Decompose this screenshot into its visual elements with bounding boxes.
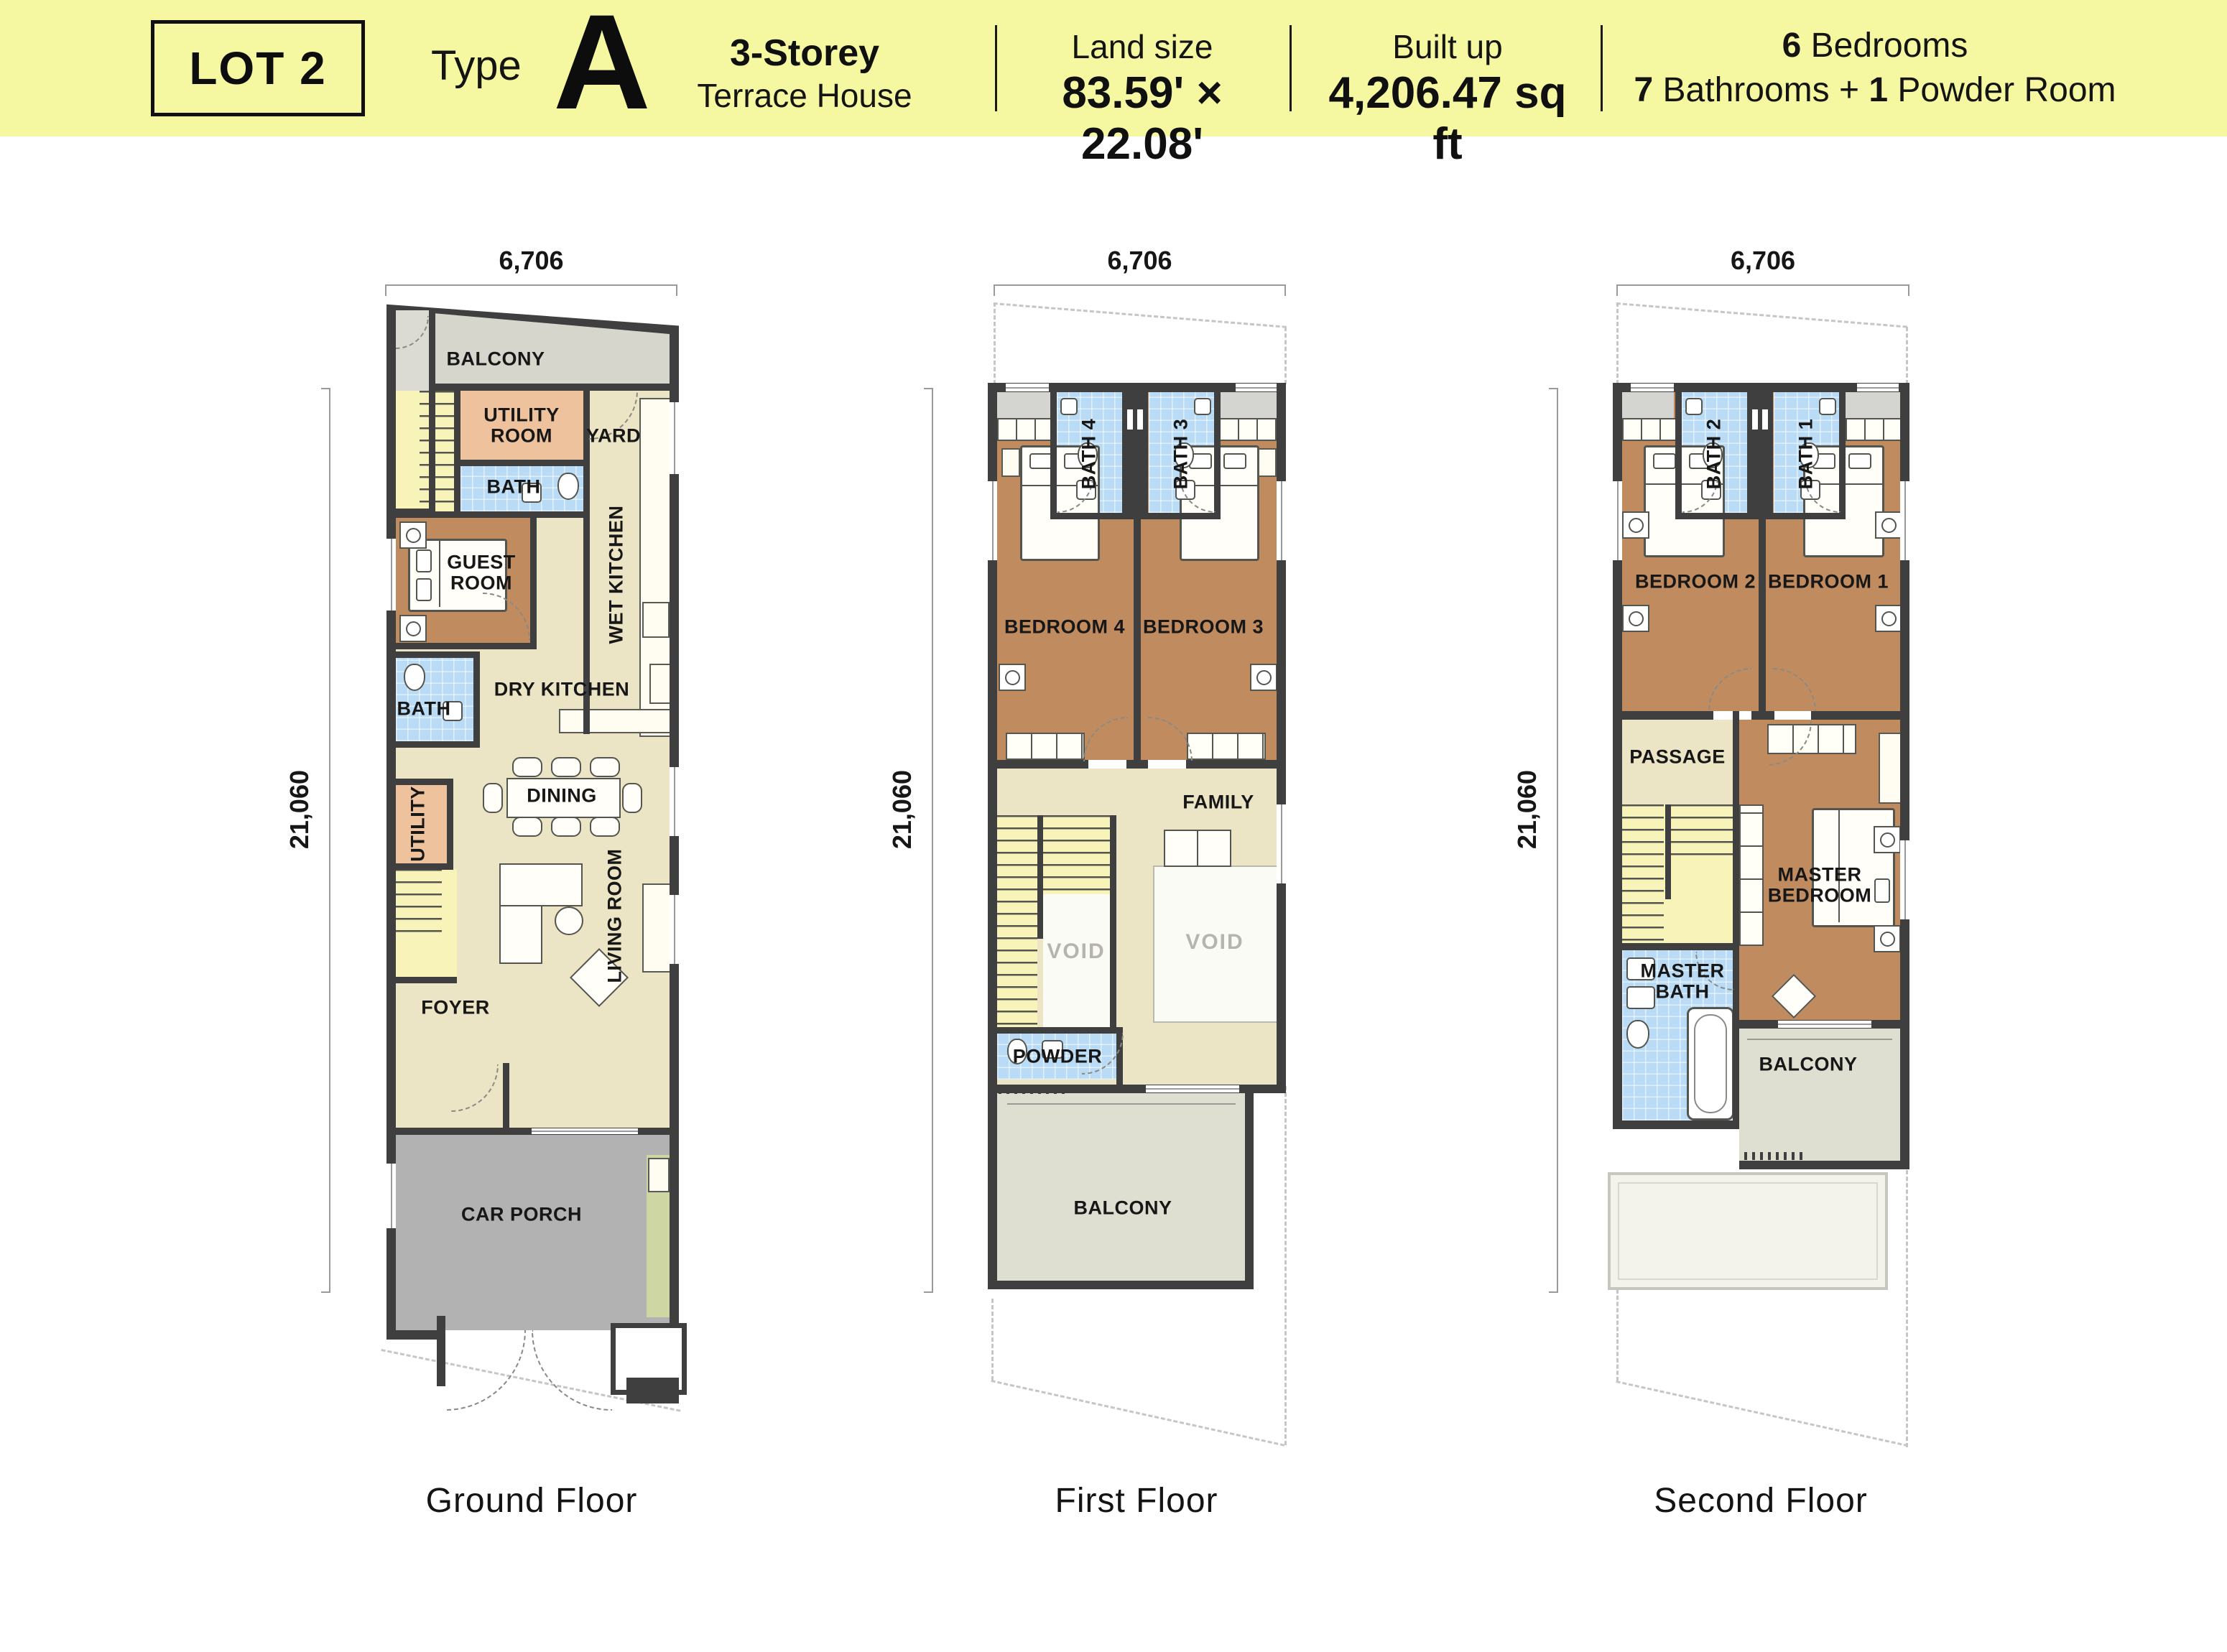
wall [503, 1063, 509, 1135]
stair-flight [1670, 804, 1733, 862]
shaft [1122, 392, 1148, 513]
built-up-value: 4,206.47 sq ft [1318, 68, 1577, 170]
stove [642, 602, 670, 638]
room-label: BATH 4 [1078, 419, 1101, 490]
room-label: POWDER [1013, 1047, 1103, 1067]
window [386, 1164, 396, 1228]
header-divider [1601, 25, 1603, 111]
lot-badge: LOT 2 [151, 20, 365, 116]
room-label: MASTER BEDROOM [1748, 864, 1892, 905]
closet [997, 392, 1055, 418]
wall [1126, 760, 1148, 769]
room-label: UTILITY ROOM [468, 404, 575, 445]
wall [386, 651, 480, 658]
wall [386, 863, 453, 870]
window [670, 895, 679, 964]
dim-line [385, 284, 677, 286]
wall [437, 1316, 445, 1386]
window [670, 402, 679, 474]
wall [1613, 943, 1739, 950]
dim-width-first: 6,706 [994, 246, 1286, 276]
shaft [1747, 392, 1773, 513]
room-label: BEDROOM 2 [1635, 572, 1756, 593]
built-up-label: Built up [1322, 27, 1573, 66]
dining-chair [551, 757, 581, 777]
balcony-railing [1747, 1039, 1892, 1040]
dresser [1879, 733, 1902, 804]
wall [1675, 513, 1846, 519]
stair-flight [1043, 815, 1110, 894]
wall [626, 1378, 679, 1403]
sofa [499, 863, 583, 906]
storey-label: 3-Storey [690, 32, 920, 75]
dim-width-second: 6,706 [1616, 246, 1909, 276]
wall [447, 779, 453, 870]
wall [1245, 1085, 1254, 1289]
bathrooms-count: 7 [1634, 71, 1653, 109]
dim-depth-second: 21,060 [1512, 770, 1542, 849]
room-label: PASSAGE [1629, 747, 1726, 768]
room-label: BATH 3 [1170, 419, 1193, 490]
stair-flight [420, 391, 454, 511]
powder-word: Powder Room [1897, 71, 2116, 109]
dim-line [329, 388, 330, 1293]
bathrooms-line: 7 Bathrooms + 1 Powder Room [1624, 70, 2126, 110]
room-label: BATH 2 [1703, 419, 1726, 490]
room-label: WET KITCHEN [606, 506, 628, 644]
wall [1050, 513, 1221, 519]
type-letter: A [553, 0, 651, 134]
void-label: VOID [1185, 930, 1244, 955]
dining-chair [483, 783, 503, 813]
second-floor-label: Second Floor [1654, 1481, 1868, 1521]
wardrobe [1622, 418, 1677, 441]
wall [386, 741, 480, 748]
bedrooms-count: 6 [1782, 27, 1802, 65]
void-label: VOID [1047, 939, 1105, 964]
closet [1846, 392, 1900, 418]
window [670, 767, 679, 836]
fan-icon [399, 615, 427, 642]
lot-label: LOT 2 [189, 42, 326, 95]
wardrobe [997, 418, 1057, 441]
bedrooms-line: 6 Bedrooms [1624, 26, 2126, 65]
fan-icon [1875, 605, 1902, 632]
first-floor-label: First Floor [1055, 1481, 1218, 1521]
window [1277, 481, 1286, 560]
wall [1675, 392, 1682, 519]
header-divider [1290, 25, 1292, 111]
wall [1110, 815, 1116, 1027]
sofa [1197, 830, 1231, 867]
fan-icon [1622, 605, 1649, 632]
land-size-label: Land size [1024, 27, 1261, 66]
tv-console [642, 883, 672, 973]
room-balcony [1739, 1029, 1900, 1161]
window [1613, 481, 1622, 560]
sliding-door [1778, 1021, 1871, 1028]
bathtub [1687, 1007, 1734, 1120]
room-label: BATH 1 [1795, 419, 1818, 490]
ground-floor-plan: BALCONY UTILITY ROOM YARD BATH GUEST ROO… [374, 302, 704, 1422]
toilet [1626, 1020, 1649, 1049]
powder-count: 1 [1869, 71, 1888, 109]
first-floor-plan: BATH 4 BATH 3 BEDROOM 4 BEDROOM 3 FAMILY… [927, 302, 1329, 1408]
fan-icon [399, 521, 427, 549]
dining-chair [512, 757, 542, 777]
stair-divider [1037, 815, 1043, 939]
wall [1613, 1120, 1739, 1129]
room-label: LIVING ROOM [604, 849, 626, 983]
bathrooms-word: Bathrooms [1663, 71, 1830, 109]
fan-icon [1874, 826, 1901, 853]
wall [988, 1085, 1286, 1093]
room-balcony [997, 1093, 1245, 1281]
room-label: UTILITY [407, 786, 430, 862]
wall [386, 779, 453, 785]
window [1236, 384, 1277, 391]
shower [1685, 398, 1703, 415]
wall [429, 312, 435, 514]
wall [1733, 711, 1739, 1129]
window [1006, 384, 1049, 391]
type-label: Type [431, 42, 522, 90]
shower [1194, 398, 1211, 415]
fan-icon [999, 664, 1026, 691]
room-label: BEDROOM 1 [1768, 572, 1889, 593]
ground-floor-label: Ground Floor [426, 1481, 638, 1521]
room-car-porch [396, 1135, 670, 1330]
room-label: CAR PORCH [461, 1205, 582, 1225]
dining-chair [512, 817, 542, 837]
second-floor-plan: BATH 2 BATH 1 BEDROOM 2 BEDROOM 1 PASSAG… [1552, 302, 1954, 1408]
wardrobe [1846, 418, 1903, 441]
stair-flight [1622, 804, 1664, 943]
wall [386, 977, 457, 983]
header-bar: LOT 2 Type A 3-Storey Terrace House Land… [0, 0, 2227, 136]
wall [454, 391, 460, 511]
sofa [1164, 830, 1198, 867]
wall [473, 651, 480, 748]
window [386, 539, 396, 611]
room-label: GUEST ROOM [435, 552, 528, 593]
dim-depth-ground: 21,060 [284, 770, 315, 849]
window [532, 1128, 638, 1134]
dining-chair [551, 817, 581, 837]
dim-depth-first: 21,060 [887, 770, 917, 849]
wall [1613, 711, 1713, 720]
fan-icon [1622, 511, 1649, 539]
sliding-door [1146, 1085, 1239, 1092]
room-label: BEDROOM 3 [1143, 617, 1264, 638]
wall [988, 1281, 1254, 1289]
window [988, 481, 997, 560]
wardrobe [1187, 733, 1266, 760]
dining-chair [622, 783, 642, 813]
stair-divider [1665, 804, 1671, 899]
room-label: BEDROOM 4 [1004, 617, 1125, 638]
window [1277, 804, 1286, 883]
wall [386, 511, 590, 518]
shaft-slot [1137, 409, 1143, 430]
wall [434, 384, 679, 391]
gate-arc [532, 1330, 612, 1411]
shower [1060, 398, 1078, 415]
cabinet [648, 1158, 670, 1192]
room-label: DINING [527, 786, 597, 807]
wall [1050, 392, 1057, 519]
room-label: MASTER BATH [1625, 960, 1740, 1001]
fan-icon [1875, 511, 1902, 539]
plus-sign: + [1839, 71, 1859, 109]
window [1857, 384, 1899, 391]
shaft-slot [1127, 409, 1133, 430]
wall [1811, 711, 1909, 720]
dining-chair [590, 817, 620, 837]
wardrobe [1006, 733, 1085, 760]
house-subtype: Terrace House [690, 76, 920, 115]
bedrooms-word: Bedrooms [1811, 27, 1968, 65]
balcony-railing [1007, 1103, 1236, 1105]
wall [386, 643, 537, 649]
room-label: BATH [397, 699, 451, 720]
kitchen-island [559, 709, 672, 733]
closet [1622, 392, 1674, 418]
window [1631, 384, 1674, 391]
room-label: FOYER [421, 998, 490, 1018]
toilet [404, 664, 425, 691]
wardrobe [1219, 418, 1279, 441]
stair-flight [997, 815, 1037, 1027]
window [1900, 840, 1909, 919]
wall [460, 460, 583, 466]
room-label: BATH [487, 477, 541, 498]
side-table [1258, 448, 1277, 477]
wall [1186, 760, 1286, 769]
room-label: FAMILY [1182, 792, 1254, 813]
fan-icon [1874, 925, 1901, 952]
roof-below [1608, 1172, 1888, 1290]
room-label: YARD [586, 426, 641, 447]
room-label: BALCONY [447, 349, 545, 370]
wall [1739, 1161, 1909, 1169]
header-divider [995, 25, 997, 111]
coffee-table [555, 906, 583, 935]
fan-icon [1250, 664, 1277, 691]
room-label: BALCONY [1759, 1054, 1858, 1075]
window [1900, 481, 1909, 560]
wall [988, 760, 1088, 769]
dining-chair [590, 757, 620, 777]
room-label: BALCONY [1074, 1198, 1172, 1219]
toilet [557, 473, 579, 500]
closet [1219, 392, 1277, 418]
stair-flight [396, 869, 442, 941]
hatch-marks [1744, 1152, 1807, 1160]
shower [1819, 398, 1836, 415]
side-table [1001, 448, 1020, 477]
wall [530, 518, 537, 643]
dim-line [1616, 284, 1909, 286]
dim-line [994, 284, 1286, 286]
dim-width-ground: 6,706 [385, 246, 677, 276]
room-label: DRY KITCHEN [494, 679, 630, 700]
gate-arc [445, 1330, 526, 1411]
wall [1751, 711, 1774, 720]
shaft-slot [1762, 409, 1768, 430]
land-size-value: 83.59' × 22.08' [1013, 68, 1272, 170]
shaft-slot [1752, 409, 1758, 430]
